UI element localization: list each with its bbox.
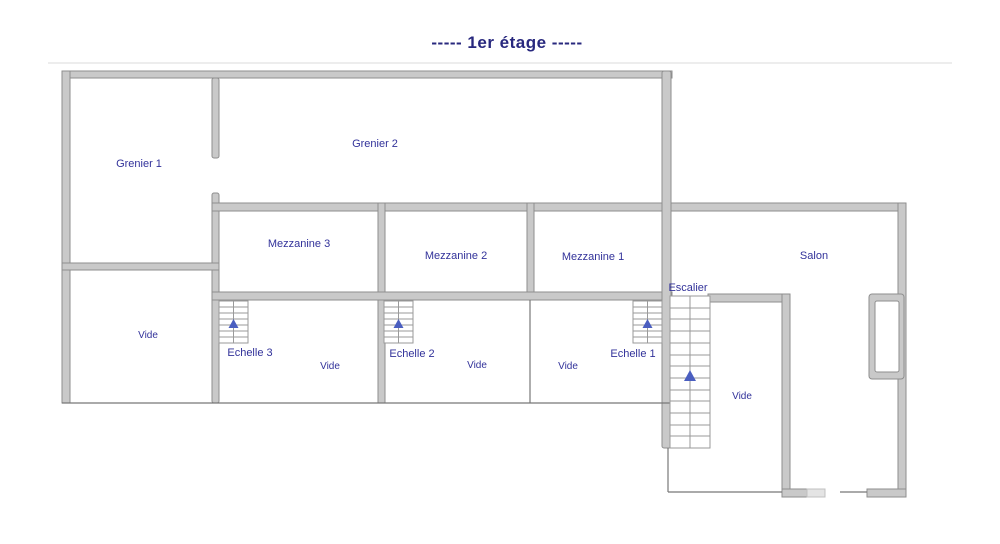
room-label-mezzanine-2: Mezzanine 2 — [406, 250, 506, 263]
wall-grenier-divider-upper — [212, 78, 219, 158]
room-label-mezzanine-3: Mezzanine 3 — [249, 238, 349, 251]
room-label-mezzanine-1: Mezzanine 1 — [543, 251, 643, 264]
niche-inner — [875, 301, 899, 372]
vide-label-room-2: Vide — [427, 360, 527, 372]
wall-top-outer — [62, 71, 672, 78]
vide-label-room-1: Vide — [518, 361, 618, 373]
salon-niche — [869, 294, 904, 379]
wall-grenier1-vide-divider — [62, 263, 219, 270]
wall-bottom-right-a — [782, 489, 807, 497]
vide-label-room-3: Vide — [280, 361, 380, 373]
room-label-grenier-2: Grenier 2 — [325, 138, 425, 151]
vide-label-stairwell: Vide — [692, 391, 792, 403]
wall-mezz2-mezz1-divider — [527, 203, 534, 300]
wall-main-horizontal — [212, 203, 906, 211]
room-label-salon: Salon — [764, 250, 864, 263]
vide-label-left: Vide — [98, 330, 198, 342]
wall-left-outer — [62, 71, 70, 403]
floor-plan: ----- 1er étage ----- Grenier 1 Grenier … — [0, 0, 1000, 544]
wall-mezzanine-vide-divider — [212, 292, 672, 300]
wall-bottom-right-light — [807, 489, 825, 497]
walls — [62, 71, 906, 497]
wall-bottom-right-b — [867, 489, 906, 497]
room-label-escalier: Escalier — [638, 282, 738, 295]
room-label-echelle-3: Echelle 3 — [200, 347, 300, 360]
floor-plan-drawing — [0, 0, 1000, 544]
wall-salon-vide-divider — [708, 294, 790, 302]
room-label-grenier-1: Grenier 1 — [89, 158, 189, 171]
room-label-echelle-1: Echelle 1 — [583, 348, 683, 361]
page-title: ----- 1er étage ----- — [357, 33, 657, 53]
